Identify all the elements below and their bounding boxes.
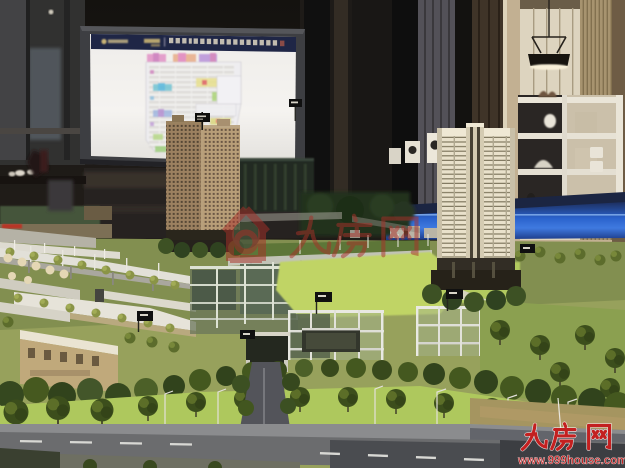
svg-text:www.999house.com: www.999house.com <box>517 455 625 467</box>
